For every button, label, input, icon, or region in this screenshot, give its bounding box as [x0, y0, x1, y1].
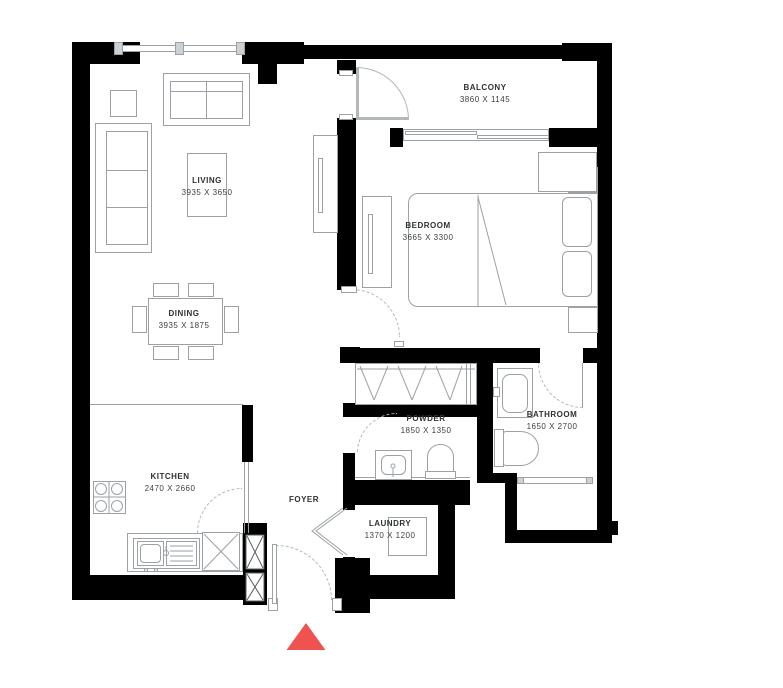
laundry-bifold-door: [312, 508, 347, 555]
bathroom-label: BATHROOM 1650 X 2700: [527, 409, 578, 433]
balcony-dims: 3860 X 1145: [460, 94, 510, 106]
bed-sheet-lines: [478, 195, 506, 306]
kitchen-name: KITCHEN: [145, 471, 196, 483]
bathroom-name: BATHROOM: [527, 409, 578, 421]
living-dims: 3935 X 3650: [182, 187, 233, 199]
laundry-dims: 1370 X 1200: [365, 530, 416, 542]
kitchen-dims: 2470 X 2660: [145, 483, 196, 495]
powder-faucet: [391, 464, 395, 477]
shaft-hatch: [246, 535, 264, 601]
powder-dims: 1850 X 1350: [401, 425, 452, 437]
dining-dims: 3935 X 1875: [159, 320, 210, 332]
dining-label: DINING 3935 X 1875: [159, 308, 210, 332]
foyer-label: FOYER: [289, 494, 319, 506]
floor-plan: LIVING 3935 X 3650 DINING 3935 X 1875 BA…: [0, 0, 783, 688]
laundry-name: LAUNDRY: [365, 518, 416, 530]
bedroom-label: BEDROOM 3665 X 3300: [403, 220, 454, 244]
living-label: LIVING 3935 X 3650: [182, 175, 233, 199]
dishwasher-x: [204, 534, 238, 569]
bathroom-dims: 1650 X 2700: [527, 421, 578, 433]
kitchen-label: KITCHEN 2470 X 2660: [145, 471, 196, 495]
laundry-label: LAUNDRY 1370 X 1200: [365, 518, 416, 542]
balcony-name: BALCONY: [460, 82, 510, 94]
bedroom-name: BEDROOM: [403, 220, 454, 232]
sink-details: [145, 546, 194, 572]
foyer-name: FOYER: [289, 494, 319, 506]
balcony-label: BALCONY 3860 X 1145: [460, 82, 510, 106]
entry-marker-triangle: [287, 623, 326, 650]
bedroom-dims: 3665 X 3300: [403, 232, 454, 244]
dining-name: DINING: [159, 308, 210, 320]
powder-name: POWDER: [401, 413, 452, 425]
wardrobe-hangers: [357, 366, 475, 400]
powder-label: POWDER 1850 X 1350: [401, 413, 452, 437]
plan-overlay: [0, 0, 783, 688]
living-name: LIVING: [182, 175, 233, 187]
hob-burners: [93, 481, 126, 514]
